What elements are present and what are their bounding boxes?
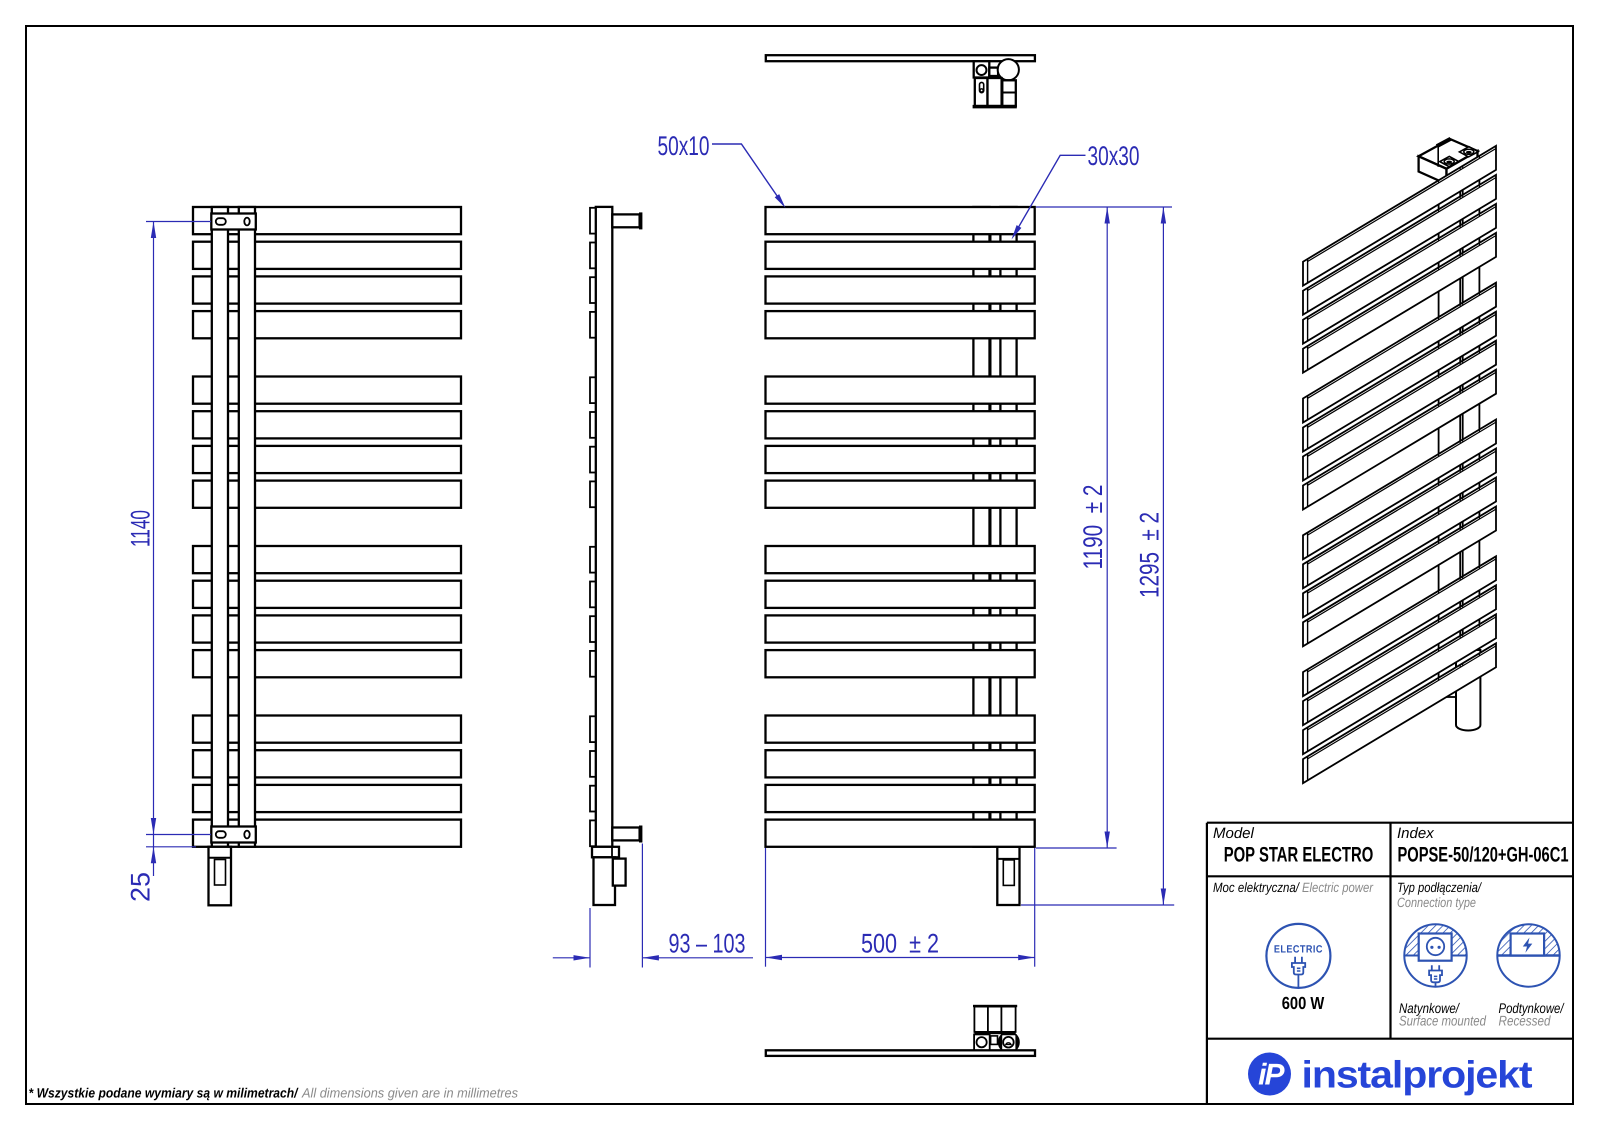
svg-text:Moc elektryczna/: Moc elektryczna/: [1213, 880, 1300, 895]
svg-text:Model: Model: [1213, 825, 1255, 842]
svg-text:1140: 1140: [126, 510, 156, 547]
svg-text:1190 ± 2: 1190 ± 2: [1078, 485, 1108, 570]
svg-text:Electric power: Electric power: [1302, 880, 1373, 895]
svg-text:Index: Index: [1397, 825, 1434, 842]
svg-text:30x30: 30x30: [1088, 141, 1140, 171]
svg-text:iP: iP: [1258, 1059, 1285, 1092]
svg-text:All dimensions given are in mi: All dimensions given are in millimetres: [301, 1086, 518, 1101]
svg-text:500 ± 2: 500 ± 2: [861, 929, 939, 959]
svg-text:600 W: 600 W: [1282, 993, 1325, 1013]
svg-text:Connection type: Connection type: [1397, 895, 1476, 910]
svg-text:1295 ± 2: 1295 ± 2: [1135, 512, 1165, 598]
svg-text:Typ podłączenia/: Typ podłączenia/: [1397, 880, 1482, 895]
svg-text:25: 25: [126, 872, 156, 902]
svg-text:50x10: 50x10: [658, 131, 710, 161]
svg-text:Recessed: Recessed: [1499, 1013, 1552, 1029]
svg-text:POP STAR ELECTRO: POP STAR ELECTRO: [1224, 844, 1374, 867]
svg-text:* Wszystkie podane wymiary są: * Wszystkie podane wymiary są w milimetr…: [29, 1086, 299, 1101]
svg-text:Surface mounted: Surface mounted: [1399, 1013, 1487, 1029]
svg-text:POPSE-50/120+GH-06C1: POPSE-50/120+GH-06C1: [1398, 844, 1569, 867]
svg-text:ELECTRIC: ELECTRIC: [1274, 944, 1323, 956]
svg-text:93 – 103: 93 – 103: [669, 929, 746, 959]
svg-text:instalprojekt: instalprojekt: [1302, 1054, 1533, 1096]
